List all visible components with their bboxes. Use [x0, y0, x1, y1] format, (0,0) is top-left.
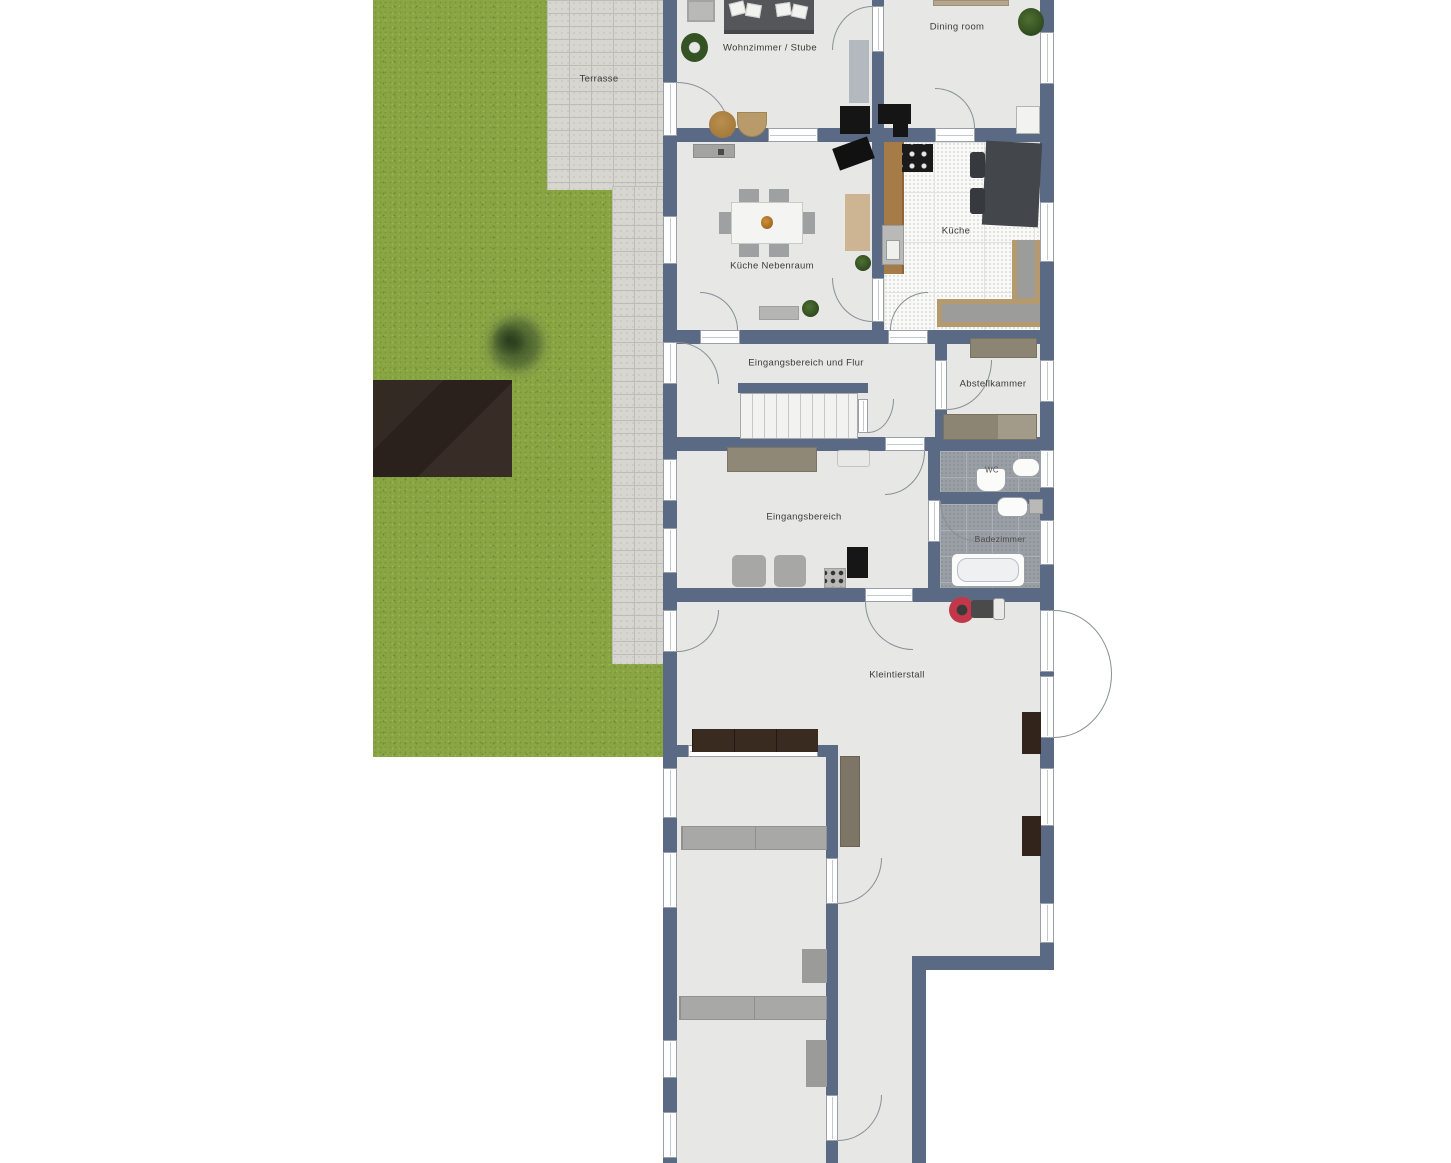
window-eingang-left-2 — [663, 528, 677, 573]
label-kueche-nebenraum: Küche Nebenraum — [730, 261, 814, 272]
door-leaf-pen-2 — [826, 1095, 838, 1141]
window-pen-left-3 — [663, 1040, 677, 1078]
chair-left — [719, 212, 731, 234]
rug-small — [687, 0, 715, 22]
door-leaf-livingroom-left — [663, 82, 677, 136]
double-door-leaf-stall-top — [1040, 610, 1054, 672]
plant-nebenraum-2-icon — [802, 300, 819, 317]
door-leaf-stairs — [858, 399, 868, 433]
window-nebenraum-left — [663, 216, 677, 264]
label-abstellkammer: Abstellkammer — [960, 379, 1027, 390]
wall-lower-right-vertical — [912, 956, 926, 1163]
white-box-eingang — [837, 450, 870, 467]
staircase — [740, 393, 858, 439]
chair-top-1 — [739, 189, 759, 202]
cabinet-dining — [1016, 106, 1040, 134]
corner-stove-right — [878, 104, 911, 124]
sofa — [724, 0, 814, 34]
door-leaf-dining-bottom — [935, 128, 975, 142]
terrace-paving-strip — [612, 186, 665, 664]
chair-bottom-1 — [739, 244, 759, 257]
floor-plan: Terrasse Wohnzimmer / Stube Dining room … — [0, 0, 1451, 1163]
window-pen-left-1 — [663, 768, 677, 818]
kitchen-table — [982, 141, 1042, 228]
window-bad-right — [1040, 520, 1054, 565]
label-flur: Eingangsbereich und Flur — [748, 358, 863, 369]
stall-bench-dark — [692, 729, 818, 752]
bathtub — [951, 553, 1025, 587]
garden-bed — [373, 380, 512, 477]
stall-cabinet-olive — [840, 756, 860, 847]
corner-stove-stub — [893, 124, 908, 137]
wall-left — [663, 0, 677, 1163]
door-leaf-stall-left — [663, 610, 677, 652]
bench-nebenraum — [759, 306, 799, 320]
label-terrasse: Terrasse — [580, 74, 619, 85]
door-leaf-nebenraum-kueche — [872, 278, 884, 322]
double-door-leaf-stall-bottom — [1040, 676, 1054, 738]
bad-sink — [997, 497, 1028, 517]
label-kueche: Küche — [942, 226, 970, 237]
stall-box-right-2 — [1022, 816, 1041, 856]
stall-box-right-1 — [1022, 712, 1041, 754]
pen-feeder-1 — [681, 826, 827, 850]
chair-top-2 — [769, 189, 789, 202]
rug-nebenraum — [845, 194, 870, 251]
door-leaf-living-dining — [872, 6, 884, 52]
window-pen-left-2 — [663, 852, 677, 908]
chair-eingang-1 — [732, 555, 766, 587]
door-leaf-nebenraum-flur — [700, 330, 740, 344]
lawn-mower-icon — [949, 596, 1005, 624]
window-abstellkammer-right — [1040, 360, 1054, 402]
kitchen-counter-corner-h — [937, 299, 1040, 327]
rug-runner — [849, 40, 869, 103]
sideboard-dining — [933, 0, 1009, 6]
toilet — [1012, 458, 1040, 477]
bad-cabinet — [1029, 499, 1043, 514]
kitchen-chair-2 — [970, 188, 985, 214]
window-pen-left-4 — [663, 1112, 677, 1158]
wood-stove — [847, 547, 868, 578]
window-stall-right-1 — [1040, 768, 1054, 826]
window-stall-right-2 — [1040, 903, 1054, 943]
label-wc: WC — [985, 466, 999, 475]
kitchen-chair-1 — [970, 152, 985, 178]
table-centerpiece — [761, 216, 773, 229]
corner-stove-left — [840, 106, 870, 134]
shelf-abstellkammer-top — [970, 338, 1037, 358]
double-door-arc-top — [1054, 610, 1112, 674]
plant-nebenraum-icon — [855, 255, 871, 271]
window-eingang-left-1 — [663, 459, 677, 501]
terrace-paving-upper — [547, 0, 665, 190]
window-kueche-right — [1040, 202, 1054, 262]
label-eingangsbereich: Eingangsbereich — [766, 512, 841, 523]
label-dining: Dining room — [930, 22, 985, 33]
wreath-plant-icon — [681, 33, 708, 62]
cooktop — [902, 144, 933, 172]
sideboard-eingang — [727, 447, 817, 472]
shelf-abstellkammer-bottom — [943, 414, 1037, 440]
window-dining-right — [1040, 32, 1054, 84]
door-leaf-pen-1 — [826, 858, 838, 904]
pen-trough-1 — [802, 949, 827, 983]
chair-right — [803, 212, 815, 234]
chair-eingang-2 — [774, 555, 806, 587]
double-door-arc-bottom — [1054, 674, 1112, 738]
pen-feeder-2 — [679, 996, 827, 1020]
door-leaf-abstellkammer — [935, 360, 947, 410]
door-leaf-flur-eingang — [885, 437, 925, 451]
door-leaf-kueche-flur — [888, 330, 928, 344]
wall-bottom-right-horizontal — [912, 956, 1054, 970]
side-table-eingang — [824, 568, 846, 588]
nebenraum-counter — [693, 144, 735, 158]
window-livingroom-bottom — [768, 128, 818, 142]
chair-bottom-2 — [769, 244, 789, 257]
kitchen-counter-corner-v — [1012, 240, 1040, 302]
wall-stair-enclosure — [738, 383, 868, 393]
label-wohnzimmer: Wohnzimmer / Stube — [723, 43, 817, 54]
plant-dining-icon — [1018, 8, 1044, 36]
door-leaf-flur-left — [663, 342, 677, 384]
pen-trough-2 — [806, 1040, 827, 1087]
window-wc-right — [1040, 450, 1054, 488]
door-leaf-stall-top — [865, 588, 913, 602]
tree-icon — [478, 306, 554, 382]
round-table — [709, 111, 736, 138]
label-badezimmer: Badezimmer — [975, 534, 1026, 544]
label-kleintierstall: Kleintierstall — [869, 670, 924, 681]
kitchen-sink — [882, 225, 904, 265]
door-leaf-bad — [928, 500, 940, 542]
